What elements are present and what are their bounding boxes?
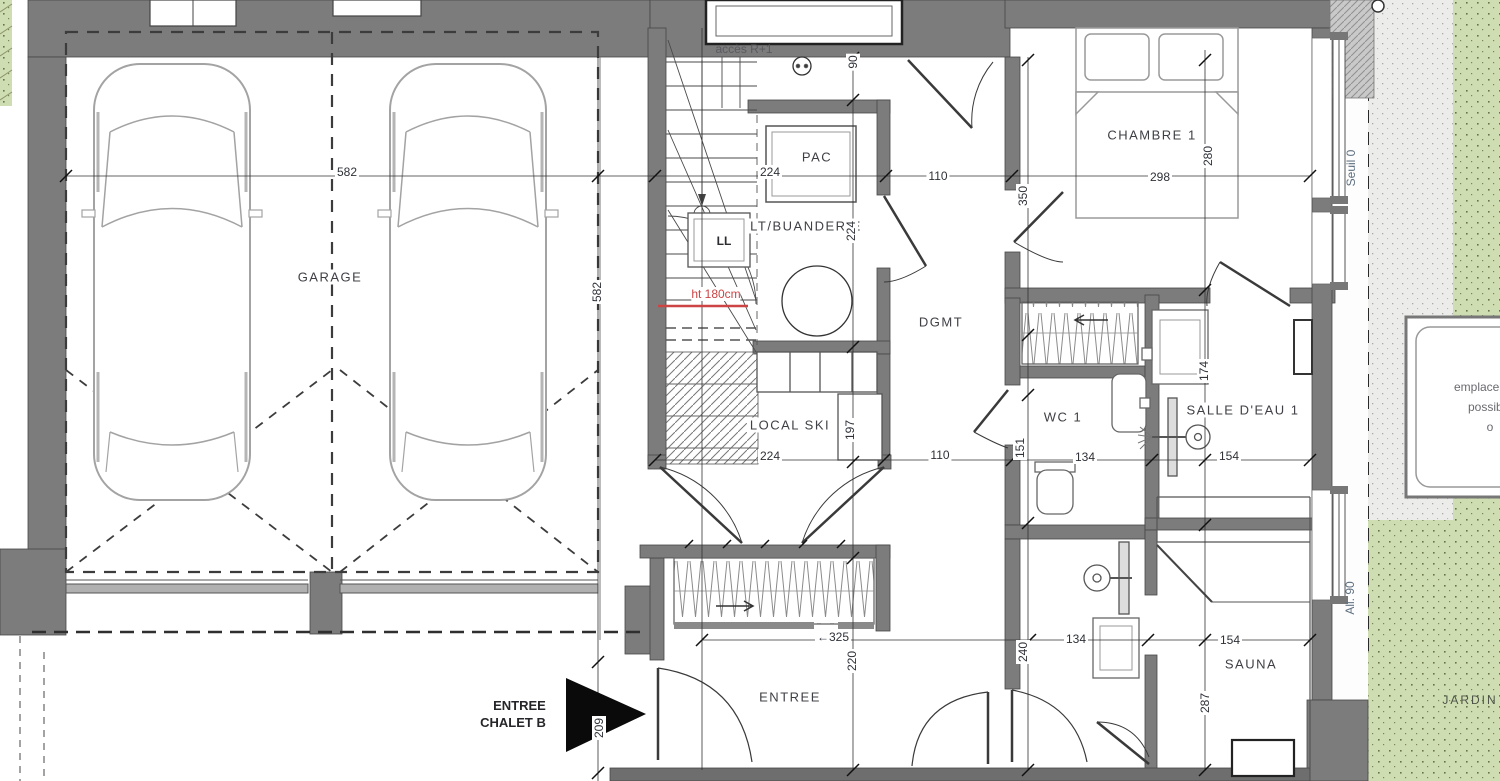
door-leaf [908,60,972,128]
sauna-benches [1157,497,1310,768]
plan-drawing [0,0,1500,781]
car-icon [378,64,558,500]
ski-cabinet [757,352,877,392]
floor-plan: accès R+1 LL ht 180cm Seuil 0 All. 90 JA… [0,0,1500,781]
car-icon [82,64,262,500]
newel-post-icon [793,57,811,75]
salle-deau-window-niche [1294,320,1312,374]
garden-left-sliver [0,0,12,106]
fixtures [674,28,1310,776]
water-heater-icon [782,266,852,336]
garden-bottom [1368,520,1453,781]
ski-cabinet-tall [838,394,882,460]
survey-point-icon [1372,0,1384,12]
garage-door [340,584,598,593]
double-door-leaf [660,467,742,543]
stair-landing-window [706,0,902,44]
emplacement-box [1406,317,1500,497]
door-arc [972,62,993,128]
bed-icon [1076,28,1238,218]
sauna-heater-icon [1232,740,1294,776]
entry-arrow-icon [566,678,646,752]
garage-area [20,32,646,781]
garage-door [66,584,308,593]
double-door-leaf [802,467,884,543]
